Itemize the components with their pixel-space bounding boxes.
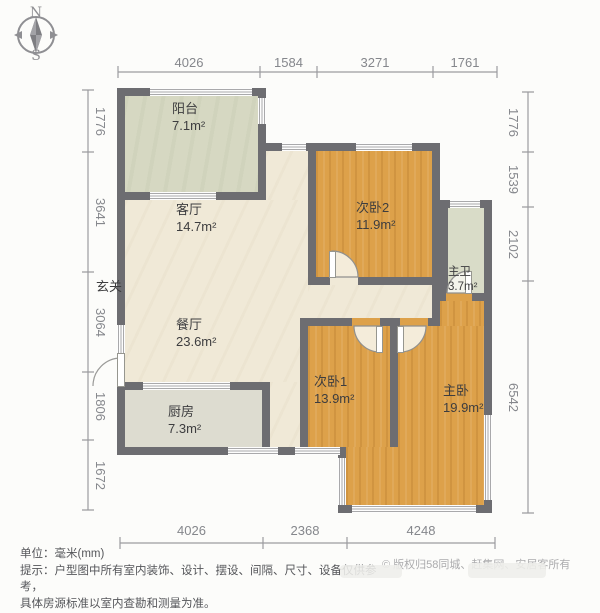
dim-right-0: 1776 [506, 92, 521, 152]
room-living-strip [266, 151, 308, 200]
window-living-top [282, 143, 306, 151]
footer-notes: 单位：毫米(mm) 提示：户型图中所有室内装饰、设计、摆设、间隔、尺寸、设备仅供… [20, 546, 390, 613]
door-leaf-master [397, 326, 404, 353]
window-bathroom-top [450, 200, 480, 208]
room-label-balcony: 阳台 7.1m² [172, 101, 205, 135]
compass-north-label: N [28, 5, 44, 21]
room-label-kitchen: 厨房 7.3m² [168, 404, 201, 438]
wall [117, 96, 125, 455]
room-name: 阳台 [172, 101, 205, 118]
wall [262, 382, 270, 447]
sliding-door-kitchen [143, 382, 230, 390]
tip-line-2: 具体房源标准以室内查勘和测量为准。 [20, 596, 390, 613]
room-label-master: 主卧 19.9m² [443, 383, 483, 417]
window-balcony-top [150, 88, 252, 96]
dim-left-4: 1672 [93, 440, 108, 510]
window-bedroom2-top [356, 143, 412, 151]
watermark-smudge [340, 565, 402, 578]
room-area: 3.7m² [448, 280, 477, 295]
room-label-dining: 餐厅 23.6m² [176, 317, 216, 351]
dim-left-0: 1776 [93, 90, 108, 152]
dim-top-2: 3271 [317, 55, 433, 70]
room-dining-ext [270, 382, 300, 447]
dim-right-2: 2102 [506, 207, 521, 281]
door-opening-bedroom1 [352, 318, 380, 326]
room-area: 19.9m² [443, 400, 483, 417]
room-area: 13.9m² [314, 391, 354, 408]
room-master-lower [346, 447, 484, 505]
dim-left-3: 1806 [93, 372, 108, 440]
window-bedroom1-bottom [295, 447, 340, 455]
room-name: 次卧1 [314, 374, 354, 391]
dim-top-0: 4026 [118, 55, 260, 70]
wall [308, 277, 432, 285]
room-area: 7.1m² [172, 118, 205, 135]
window-master-bottom [352, 505, 476, 513]
dim-right-1: 1539 [506, 152, 521, 207]
wall [308, 151, 316, 285]
room-master-upper [440, 301, 484, 326]
room-label-bedroom1: 次卧1 13.9m² [314, 374, 354, 408]
window-master-left [338, 458, 346, 505]
room-label-living: 客厅 14.7m² [176, 202, 216, 236]
room-name: 次卧2 [356, 200, 396, 217]
window-kitchen-bottom [228, 447, 278, 455]
door-opening-bedroom2 [330, 277, 358, 285]
wall [440, 208, 448, 293]
room-label-bathroom: 主卫 3.7m² [448, 265, 477, 295]
room-area: 11.9m² [356, 217, 396, 234]
door-leaf-bedroom2 [329, 251, 336, 278]
room-area: 14.7m² [176, 219, 216, 236]
floor-plan-page: N S 阳台 7.1m² 客厅 14.7m² 餐厅 23.6m² 厨房 7.3m… [0, 0, 600, 600]
door-leaf-entry [117, 353, 125, 387]
dim-left-1: 3641 [93, 152, 108, 272]
tip-line-1: 提示：户型图中所有室内装饰、设计、摆设、间隔、尺寸、设备仅供参考， [20, 563, 390, 596]
room-name: 主卧 [443, 383, 483, 400]
room-label-bedroom2: 次卧2 11.9m² [356, 200, 396, 234]
room-hallway [308, 285, 432, 318]
compass-south-label: S [28, 48, 44, 64]
wall [300, 326, 308, 455]
dim-top-3: 1761 [433, 55, 497, 70]
window-master-right [484, 415, 492, 500]
sliding-door-balcony [150, 192, 216, 200]
room-name: 主卫 [448, 265, 477, 280]
unit-note: 单位：毫米(mm) [20, 546, 390, 563]
window-balcony-right [258, 98, 266, 124]
dim-bottom-0: 4026 [120, 523, 263, 538]
dim-line-right [522, 92, 534, 513]
room-name: 餐厅 [176, 317, 216, 334]
dim-left-2: 3064 [93, 272, 108, 372]
room-name: 客厅 [176, 202, 216, 219]
dim-top-1: 1584 [260, 55, 317, 70]
room-area: 23.6m² [176, 334, 216, 351]
watermark-smudge [468, 563, 546, 578]
dim-bottom-2: 4248 [347, 523, 495, 538]
dim-bottom-1: 2368 [263, 523, 347, 538]
room-name: 厨房 [168, 404, 201, 421]
room-living-dining [125, 200, 308, 382]
door-leaf-bedroom1 [376, 326, 383, 353]
room-area: 7.3m² [168, 421, 201, 438]
window-entry-left [117, 325, 125, 353]
dim-right-3: 6542 [506, 281, 521, 513]
door-opening-master [400, 318, 428, 326]
